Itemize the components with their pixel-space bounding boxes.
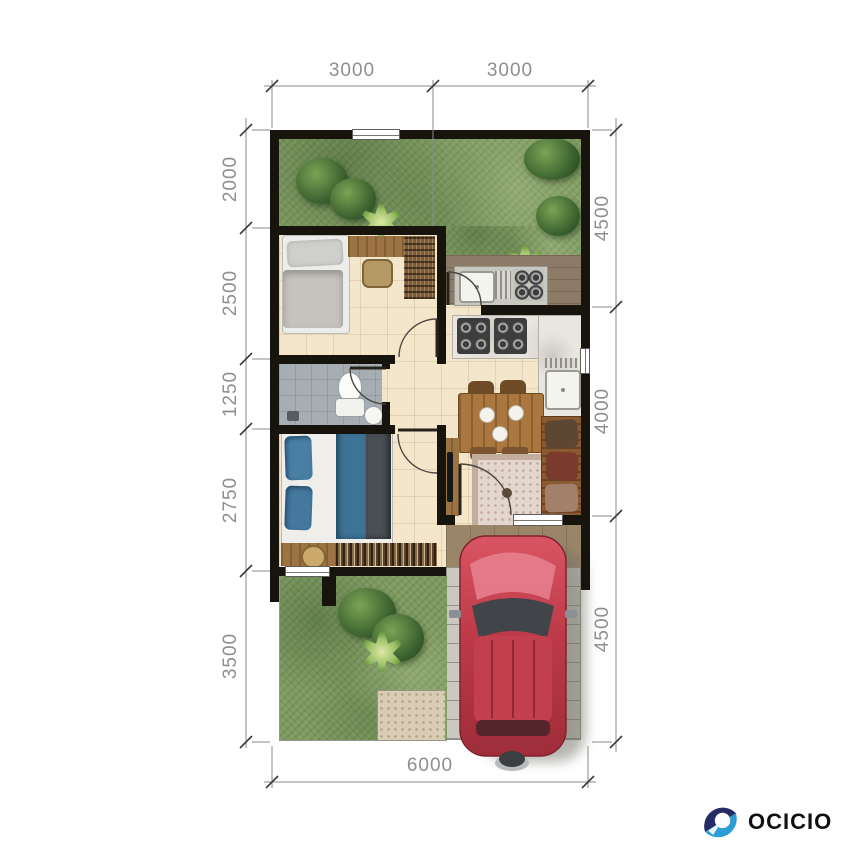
wardrobe-clothes [336,543,436,566]
dim-left-2: 2500 [220,270,242,316]
wall-top [270,130,590,139]
wall-kitchen-top [481,305,590,315]
wall-stub [437,425,446,434]
floor-plan-canvas: 3000 3000 2000 2500 1250 2750 3500 4500 … [0,0,850,850]
service-drainboard [495,271,511,299]
ocicio-ring-icon [702,804,739,841]
wall-bedroom2-bottom-right [330,567,446,576]
car-tailgate [474,738,552,750]
dim-left-4: 2750 [220,477,242,523]
tv [447,452,453,502]
sofa-cushion [545,451,578,481]
wall-garden-stub-left [270,576,279,602]
kitchen-sink [545,370,581,410]
dim-top-2: 3000 [487,60,533,82]
wall-bedroom2-top [270,425,395,434]
brand-logo: OCICIO [702,798,848,846]
wall-bathroom-right-upper [382,363,390,369]
bathroom-sink [364,406,383,425]
dim-right-2: 4000 [592,388,614,434]
dining-table [458,393,544,453]
shrub [524,138,580,180]
wall-bedroom2-right [437,434,446,525]
car-muffler [499,751,525,767]
wall-bathroom-right-lower [382,402,390,427]
wall-bedroom1-bottom [270,355,395,364]
service-sink [459,271,495,303]
stool-basket [362,259,393,288]
dim-top-1: 3000 [329,60,375,82]
blanket [283,270,343,328]
pillow-blue [284,486,313,531]
floor-drain [287,411,299,421]
dim-right-3: 4500 [592,606,614,652]
pillow [286,239,343,268]
plate [492,426,508,442]
window-kitchen [580,348,590,374]
stepping-pad [378,691,445,740]
car-red [440,520,600,776]
car-mirror-left [449,610,461,618]
shrub [536,196,580,236]
wall-bedroom1-top [270,226,446,235]
toilet-tank [335,398,365,417]
service-stove [514,269,544,301]
cooktop-module [494,318,527,354]
wall-core-vertical [437,226,446,363]
rug-medallion [502,488,512,498]
blanket-blue [336,431,366,539]
dim-bottom-1: 6000 [407,755,453,777]
plate [479,407,495,423]
wall-living-bottom-right [563,515,590,525]
kitchen-drainboard [545,358,577,368]
car-rear-window [476,720,550,736]
window-bedroom1 [352,129,400,140]
dim-left-1: 2000 [220,156,242,202]
wall-garden-stub-mid [322,576,336,606]
dim-left-3: 1250 [220,371,242,417]
car-mirror-right [565,610,577,618]
cooktop-module [457,318,490,354]
dim-right-1: 4500 [592,195,614,241]
pillow-blue [284,436,313,481]
wall-bedroom2-bottom-left [270,567,285,576]
sofa-cushion [545,483,579,512]
blanket-dark [366,431,391,539]
sofa-cushion [544,419,579,449]
bookshelf [404,236,435,299]
plate [508,405,524,421]
window-living [513,514,563,526]
window-bedroom2 [285,566,330,577]
dim-left-5: 3500 [220,633,242,679]
brand-name: OCICIO [748,809,832,835]
wall-living-bottom-left [446,515,455,525]
